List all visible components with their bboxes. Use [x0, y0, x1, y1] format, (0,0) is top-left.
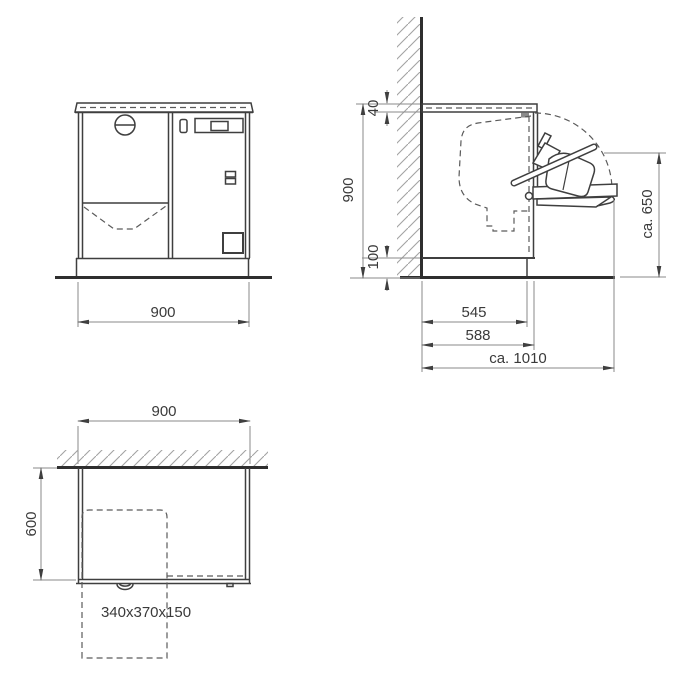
- goods-on-door-illustration: [514, 133, 595, 197]
- plan-width-label: 900: [151, 403, 176, 420]
- door-open-height-label: ca. 650: [639, 189, 656, 238]
- depth-to-front-label: 588: [465, 327, 490, 344]
- front-coin-slot-icon: [226, 172, 236, 185]
- box-size-label: 340x370x150: [101, 604, 191, 621]
- side-height-label: 900: [340, 177, 357, 202]
- front-hopper: [82, 203, 168, 229]
- door-open-height-dimension: ca. 650: [604, 153, 666, 277]
- front-width-dimension: 900: [78, 282, 249, 327]
- plan-machine-outline: [76, 468, 251, 584]
- tank-contour-dashed: [459, 116, 531, 231]
- technical-drawing: 900: [0, 0, 680, 680]
- panel-switch-icon: [180, 120, 187, 133]
- front-width-label: 900: [150, 304, 175, 321]
- front-worktop: [75, 103, 253, 112]
- side-body: [422, 112, 538, 277]
- front-control-panel: [180, 119, 243, 133]
- hinge-pin: [526, 193, 533, 200]
- worktop-thickness-label: 40: [365, 100, 382, 117]
- plan-view: 900 600 3: [23, 403, 268, 658]
- side-bottom-dimensions: 545 588 ca. 1010: [422, 200, 614, 372]
- plan-depth-label: 600: [23, 511, 40, 536]
- side-worktop: [422, 104, 537, 118]
- front-cap-circle-icon: [115, 115, 135, 135]
- display-window: [211, 122, 228, 131]
- plan-door-handle-bump: [117, 584, 133, 590]
- front-body: [75, 112, 253, 258]
- front-service-hatch: [223, 233, 243, 253]
- plan-front-notch: [227, 584, 233, 587]
- plinth-height-label: 100: [365, 244, 382, 269]
- side-view: 40 900 100 ca. 650 545 588 ca. 1010: [340, 17, 666, 372]
- drawing-canvas: 900: [0, 0, 680, 680]
- depth-to-plinth-label: 545: [461, 304, 486, 321]
- front-view: 900: [55, 103, 272, 327]
- plan-depth-dimension: 600: [23, 468, 76, 580]
- front-plinth: [76, 258, 250, 276]
- plan-wall-hatch: [57, 450, 268, 467]
- depth-door-open-label: ca. 1010: [489, 350, 547, 367]
- wall-hatch: [397, 17, 421, 277]
